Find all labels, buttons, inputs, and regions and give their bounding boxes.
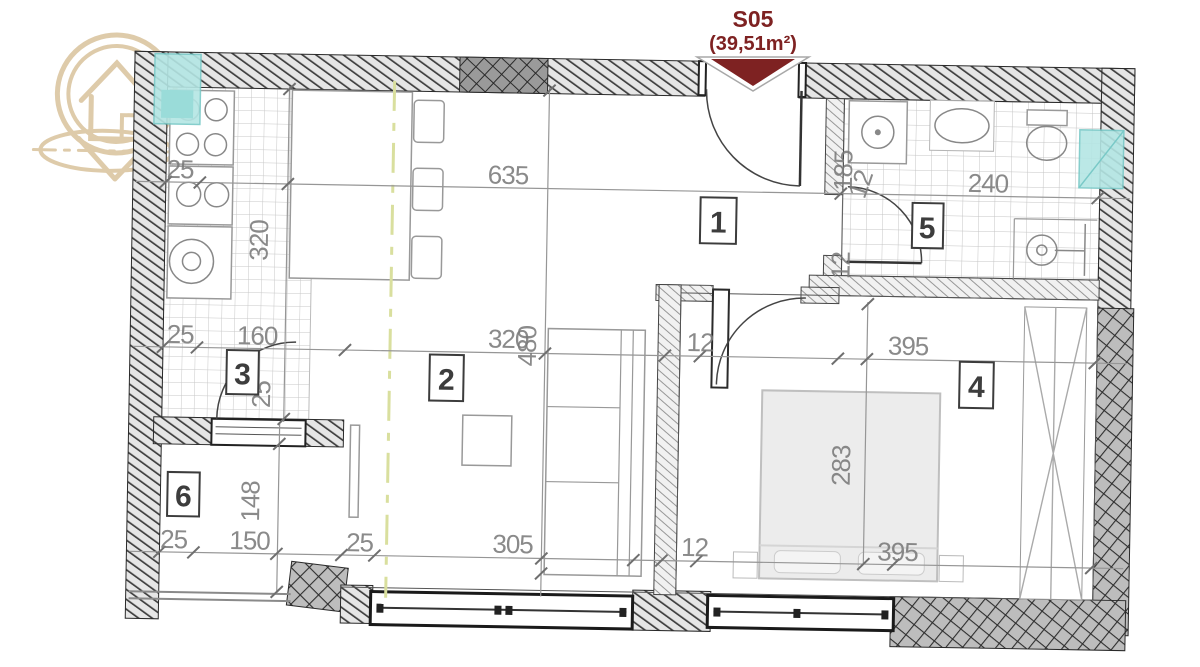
wall-bottom-right <box>890 597 1126 651</box>
unit-code: S05 <box>733 6 774 32</box>
dim-left-25: 25 <box>166 319 194 349</box>
bedroom-door-jamb <box>711 289 729 387</box>
dim-bath-width: 240 <box>968 168 1009 199</box>
room-label-5: 5 <box>912 203 944 249</box>
vanity-counter <box>930 100 995 151</box>
wall-right-lower <box>1092 308 1134 636</box>
chair <box>414 100 445 143</box>
dim-hall-width: 635 <box>488 159 529 190</box>
toilet-tank <box>1027 110 1067 126</box>
dim-balcony-height: 148 <box>235 480 266 521</box>
coffee-table <box>462 415 512 466</box>
wall-top-column <box>459 57 548 94</box>
dim-bedroom-width: 395 <box>888 331 929 362</box>
window-mark <box>494 606 501 615</box>
entrance-jamb-left <box>698 61 706 95</box>
wall-right-upper <box>1098 68 1135 314</box>
tv-stand <box>349 425 360 517</box>
room-label-3: 3 <box>226 350 259 395</box>
dim-living-height: 480 <box>512 325 543 366</box>
column-bottom <box>286 561 348 612</box>
dim-bedroom-wall-bottom: 12 <box>681 532 709 562</box>
window-mark <box>881 610 888 619</box>
room-label-6: 6 <box>167 472 200 517</box>
chair <box>411 236 442 279</box>
room-number: 4 <box>968 371 986 404</box>
kitchen-cabinet <box>167 226 232 299</box>
room-number: 1 <box>710 206 727 239</box>
floor-plan-drawing: 25 635 240 185 12 320 25 160 320 480 12 … <box>0 0 1200 667</box>
dim-bedroom-wall: 12 <box>686 327 714 357</box>
wall-between-windows <box>632 590 711 631</box>
room-number: 3 <box>234 358 251 391</box>
room-label-4: 4 <box>959 362 994 409</box>
nightstand <box>939 555 963 581</box>
window-mark <box>793 609 800 618</box>
chair <box>412 168 443 211</box>
window-mark <box>376 604 383 613</box>
window-mark <box>619 608 626 617</box>
room-label-1: 1 <box>700 197 737 244</box>
dim-living-bottom: 305 <box>492 529 533 560</box>
dim-balcony-width: 150 <box>229 525 270 556</box>
nightstand <box>733 552 757 578</box>
dim-kitchen-top: 25 <box>166 154 194 184</box>
entrance-door-leaf <box>800 91 802 186</box>
room-number: 5 <box>919 212 936 245</box>
window-mark <box>505 606 512 615</box>
dim-bedroom-bottom: 395 <box>877 536 918 567</box>
unit-area: (39,51m²) <box>709 33 797 55</box>
dim-balcony-left: 25 <box>160 524 188 554</box>
room-number: 2 <box>438 364 455 397</box>
dim-bath-wall-mid: 12 <box>825 251 855 279</box>
room-number: 6 <box>175 480 192 513</box>
dim-bedroom-height: 283 <box>826 445 857 486</box>
bathroom-door-leaf <box>847 262 922 263</box>
kitchen-vent-inner <box>161 90 193 119</box>
dim-kitchen-height: 320 <box>244 220 275 261</box>
balcony-door-frame <box>211 419 305 447</box>
room-label-2: 2 <box>429 355 464 402</box>
dim-balcony-right: 25 <box>346 527 374 557</box>
dim-kitchen-width: 160 <box>237 320 278 351</box>
wall-window-left-stub <box>340 585 373 624</box>
window-mark <box>713 607 720 616</box>
